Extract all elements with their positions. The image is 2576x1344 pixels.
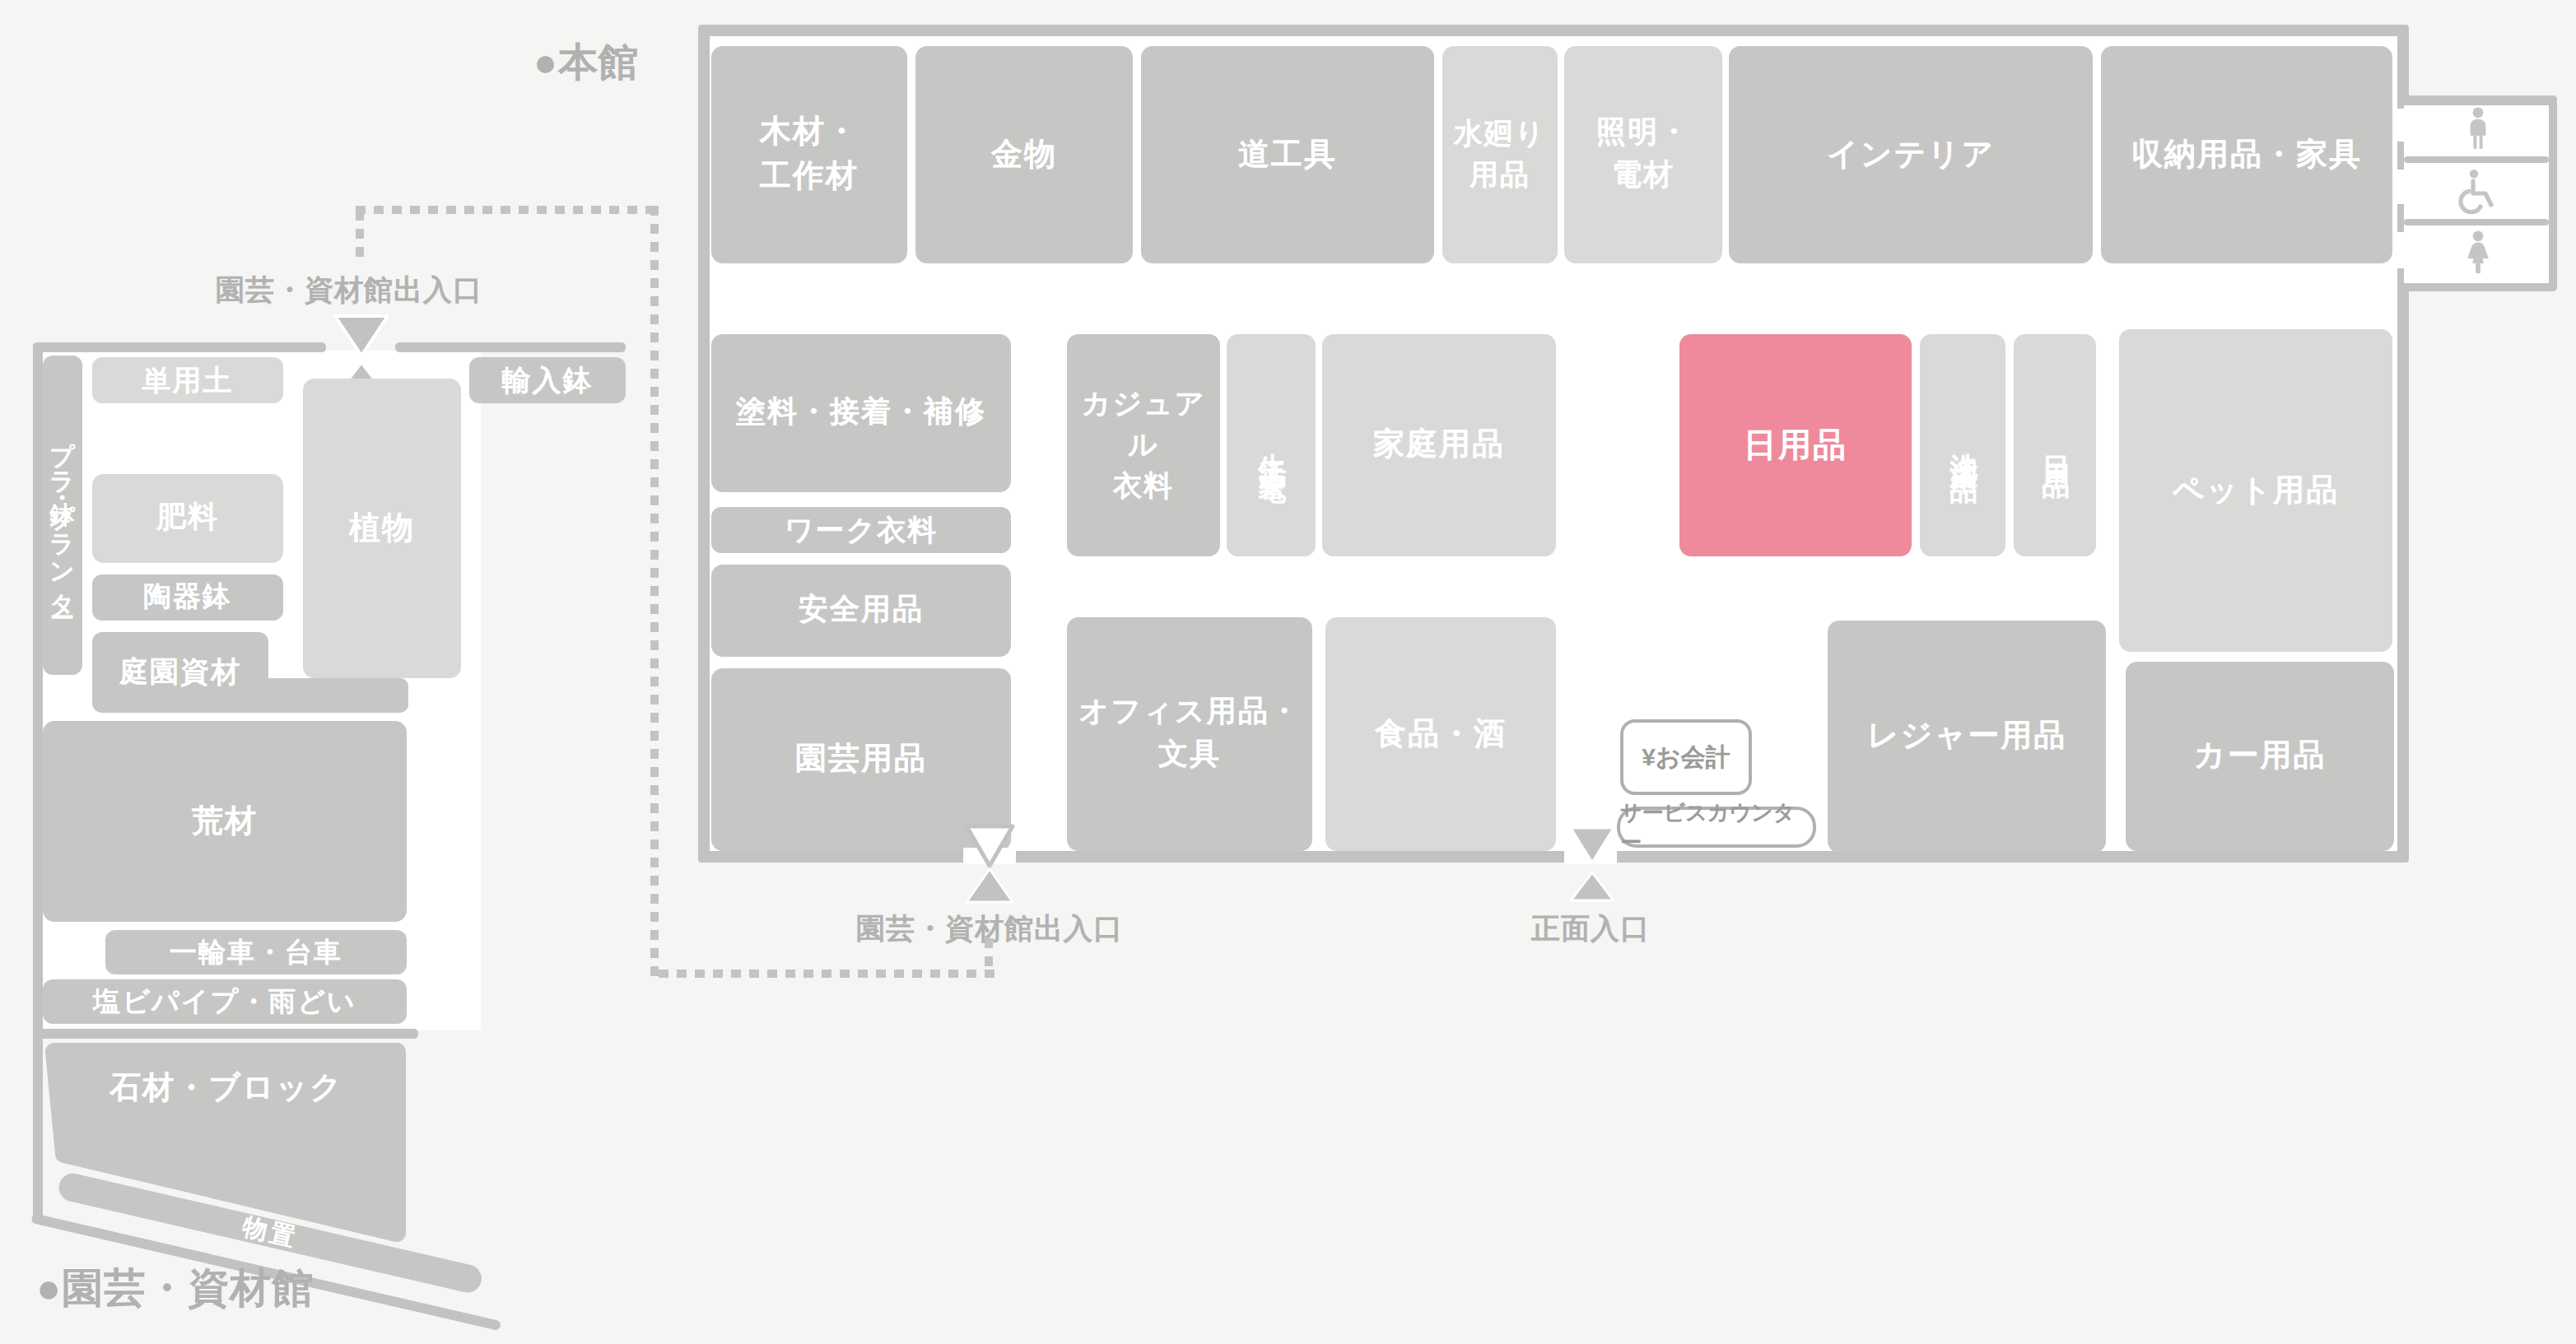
dept-daily-goods: 日用品 [2014,334,2096,556]
dept-food-alcohol: 食品・酒 [1325,617,1556,851]
dept-leisure-goods: レジャー用品 [1828,621,2106,853]
dept-wheelbarrow-cart: 一輪車・台車 [105,930,407,974]
route-dash-segment [356,206,659,214]
dept-casual-clothing: カジュアル 衣料 [1067,334,1220,556]
dept-potting-soil: 単用土 [92,357,283,403]
main-building-title: ●本館 [533,36,639,89]
restroom-door-gap [2396,232,2409,268]
dept-daily-goods-highlighted: 日用品 [1679,334,1912,556]
dept-garden-materials: 庭園資材 [92,632,268,713]
dept-storage-furniture: 収納用品・家具 [2101,46,2392,263]
dept-work-clothing: ワーク衣料 [711,507,1011,553]
restroom-divider [2404,156,2549,163]
restroom-wall-right [2548,95,2557,291]
dept-wood-materials: 木材・ 工作材 [711,46,907,263]
dept-rough-lumber: 荒材 [43,721,407,922]
route-dash-segment [650,206,659,978]
womens-restroom-icon [2460,230,2496,277]
front-entrance-label: 正面入口 [1508,909,1673,948]
garden-gate-label: 園芸・資材館出入口 [855,909,1125,948]
restroom-door-gap [2396,170,2409,204]
garden-building-title: ●園芸・資材館 [36,1261,314,1315]
dept-plumbing-supplies: 水廻り 用品 [1442,46,1558,263]
dept-tools: 道工具 [1141,46,1434,263]
dept-hardware: 金物 [915,46,1133,263]
dept-pet-supplies: ペット用品 [2119,329,2392,652]
dept-plants: 植物 [303,379,461,678]
front-entrance-arrow-icon [1566,823,1619,905]
dept-interior: インテリア [1729,46,2093,263]
garden-building-entrance-label: 園芸・資材館出入口 [214,270,484,309]
mens-restroom-icon [2462,107,2494,151]
dept-lighting-electrical: 照明・ 電材 [1564,46,1722,263]
dept-stone-block-label: 石材・ブロック [74,1067,379,1109]
checkout-area: ¥お会計 [1620,719,1752,795]
route-dash-segment [356,211,364,257]
dept-home-appliances: 生活家電 [1227,334,1316,556]
dept-fertilizer: 肥料 [92,474,283,563]
dept-safety-supplies: 安全用品 [711,565,1011,657]
dept-paint-adhesive-repair: 塗料・接着・補修 [711,334,1011,492]
restroom-wall-top [2399,95,2557,105]
dept-imported-pots: 輸入鉢 [469,357,626,403]
restroom-door-gap [2396,109,2409,142]
dept-ceramic-pots: 陶器鉢 [92,574,283,621]
dept-pvc-pipe-gutter: 塩ビパイプ・雨どい [43,979,407,1024]
accessible-restroom-icon [2453,168,2499,216]
dept-household-goods: 家庭用品 [1322,334,1556,556]
dept-garden-materials-extension [247,678,408,713]
service-counter: サービスカウンター [1617,807,1816,848]
dept-office-stationery: オフィス用品・ 文具 [1067,617,1312,851]
garden-wall-top-right [395,342,626,351]
dept-car-goods: カー用品 [2126,662,2394,851]
dept-laundry-supplies: 洗濯用品 [1920,334,2005,556]
dept-planters: プラ鉢・プランター [43,356,82,675]
route-dash-segment [659,970,995,978]
garden-wall-top-left [33,342,326,351]
store-floor-map: ●本館 木材・ 工作材 金物 道工具 水廻り 用品 照明・ 電材 インテリア 収… [0,0,2576,1344]
restroom-divider [2404,219,2549,226]
restroom-wall-bottom [2399,282,2557,291]
garden-gate-arrow-icon [962,823,1018,905]
